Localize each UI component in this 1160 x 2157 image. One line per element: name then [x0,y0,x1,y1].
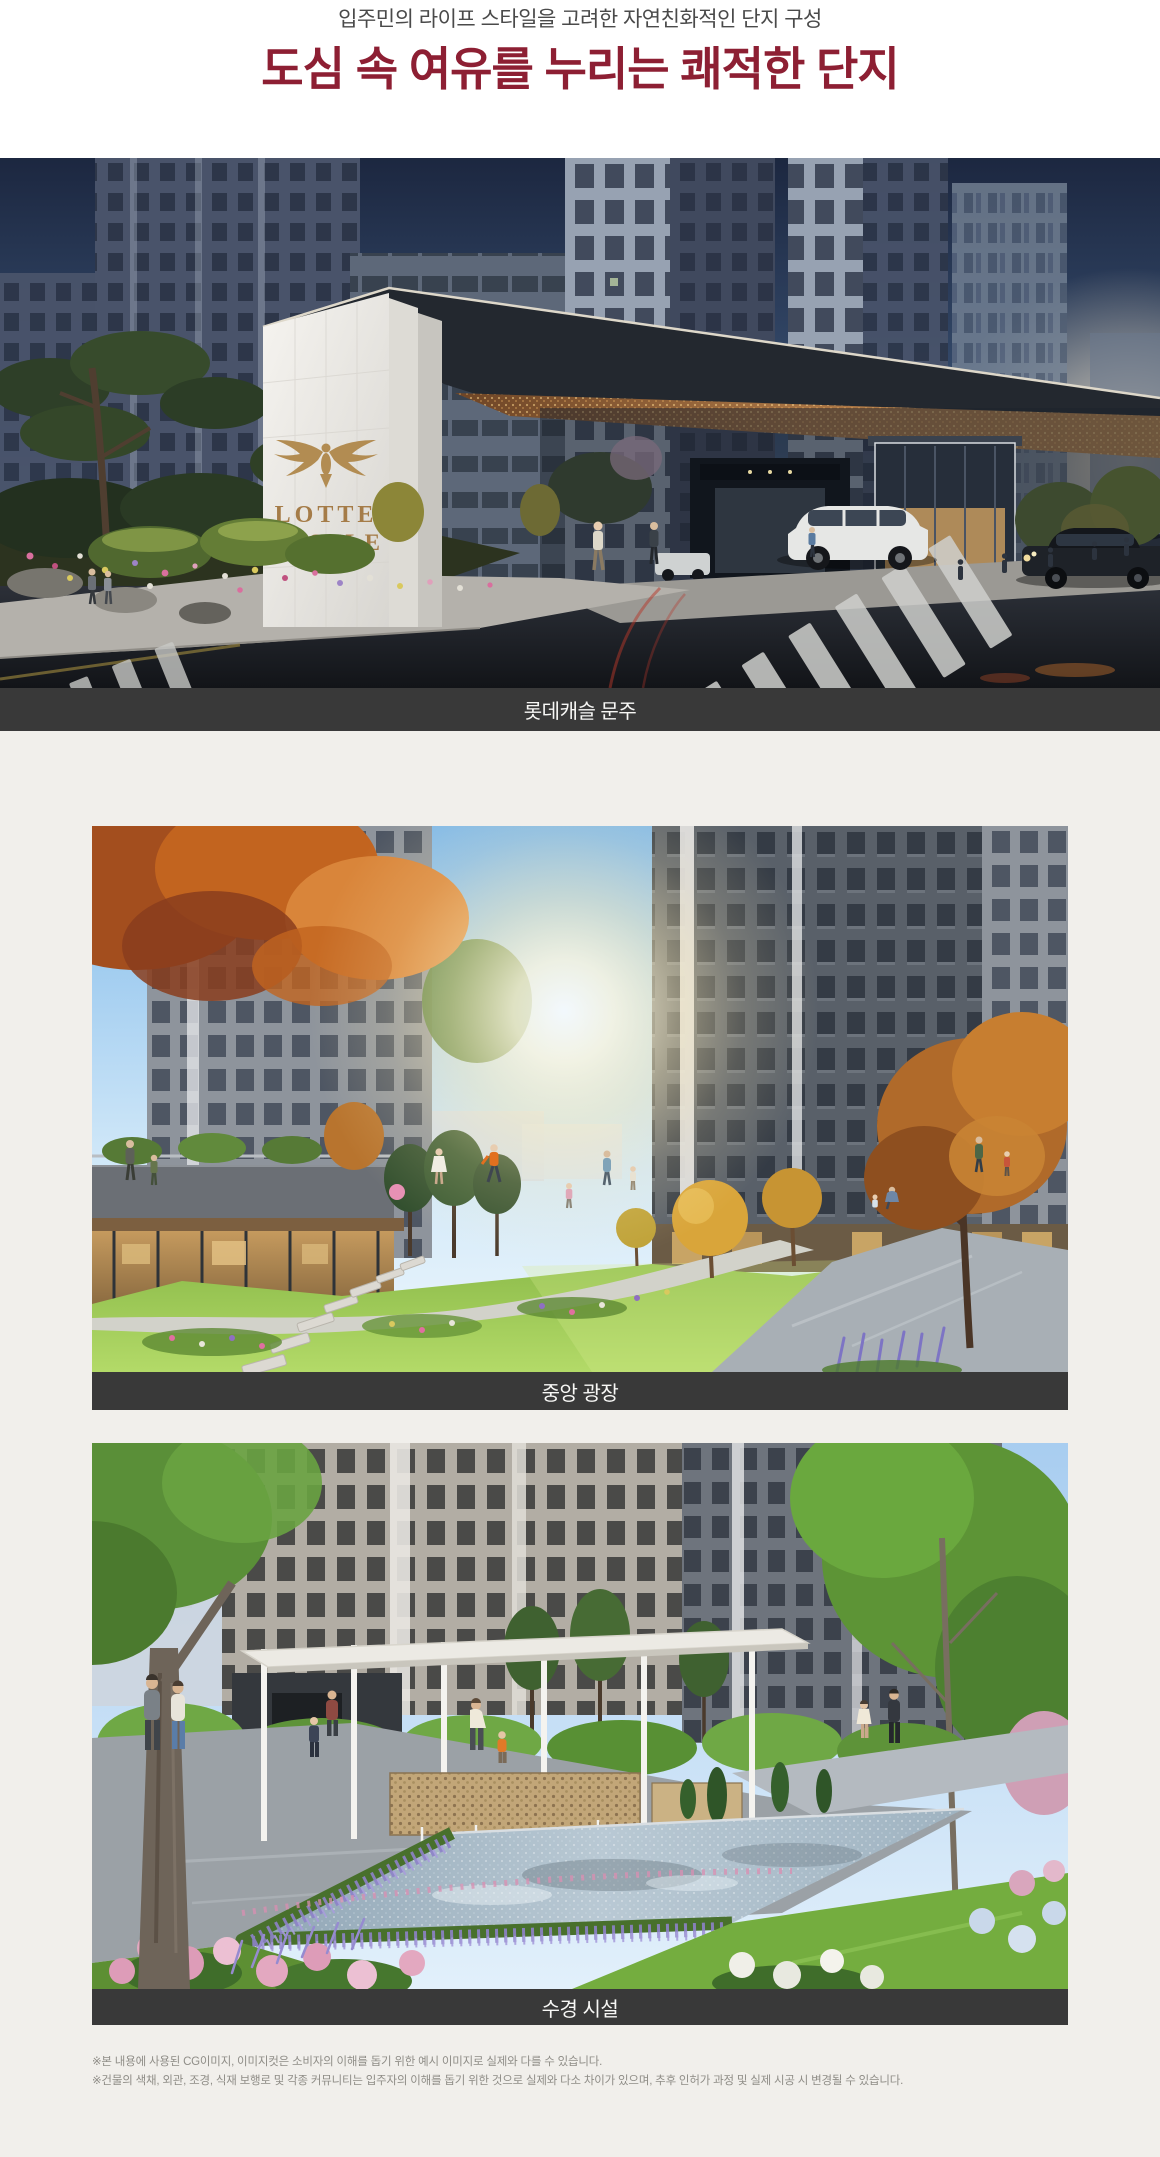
plaza-rendering-image [92,826,1068,1372]
section-subtitle: 입주민의 라이프 스타일을 고려한 자연친화적인 단지 구성 [338,7,822,33]
bottom-spacer [0,2091,1160,2155]
disclaimer-line-2: ※건물의 색채, 외관, 조경, 식재 보행로 및 각종 커뮤니티는 입주자의 … [92,2072,1160,2091]
gate-rendering-image: LOTTE CASTLE [0,158,1160,688]
figure-plaza: 중앙 광장 [92,826,1068,1410]
gate-pillar: LOTTE CASTLE [263,293,442,627]
pink-ball [389,1184,405,1200]
figure-caption-plaza: 중앙 광장 [92,1372,1068,1410]
disclaimer-block: ※본 내용에 사용된 CG이미지, 이미지컷은 소비자의 이해를 돕기 위한 예… [92,2053,1160,2091]
figure-water: 수경 시설 [92,1443,1068,2025]
water-feature-rendering-image [92,1443,1068,1989]
page: 입주민의 라이프 스타일을 고려한 자연친화적인 단지 구성 도심 속 여유를 … [0,0,1160,2155]
figure-caption-gate: 롯데캐슬 문주 [0,688,1160,731]
figure-gate: LOTTE CASTLE [0,158,1160,731]
figure-caption-water: 수경 시설 [92,1989,1068,2025]
section-header: 입주민의 라이프 스타일을 고려한 자연친화적인 단지 구성 도심 속 여유를 … [0,0,1160,158]
disclaimer-line-1: ※본 내용에 사용된 CG이미지, 이미지컷은 소비자의 이해를 돕기 위한 예… [92,2053,1160,2072]
page-title: 도심 속 여유를 누리는 쾌적한 단지 [261,42,898,96]
